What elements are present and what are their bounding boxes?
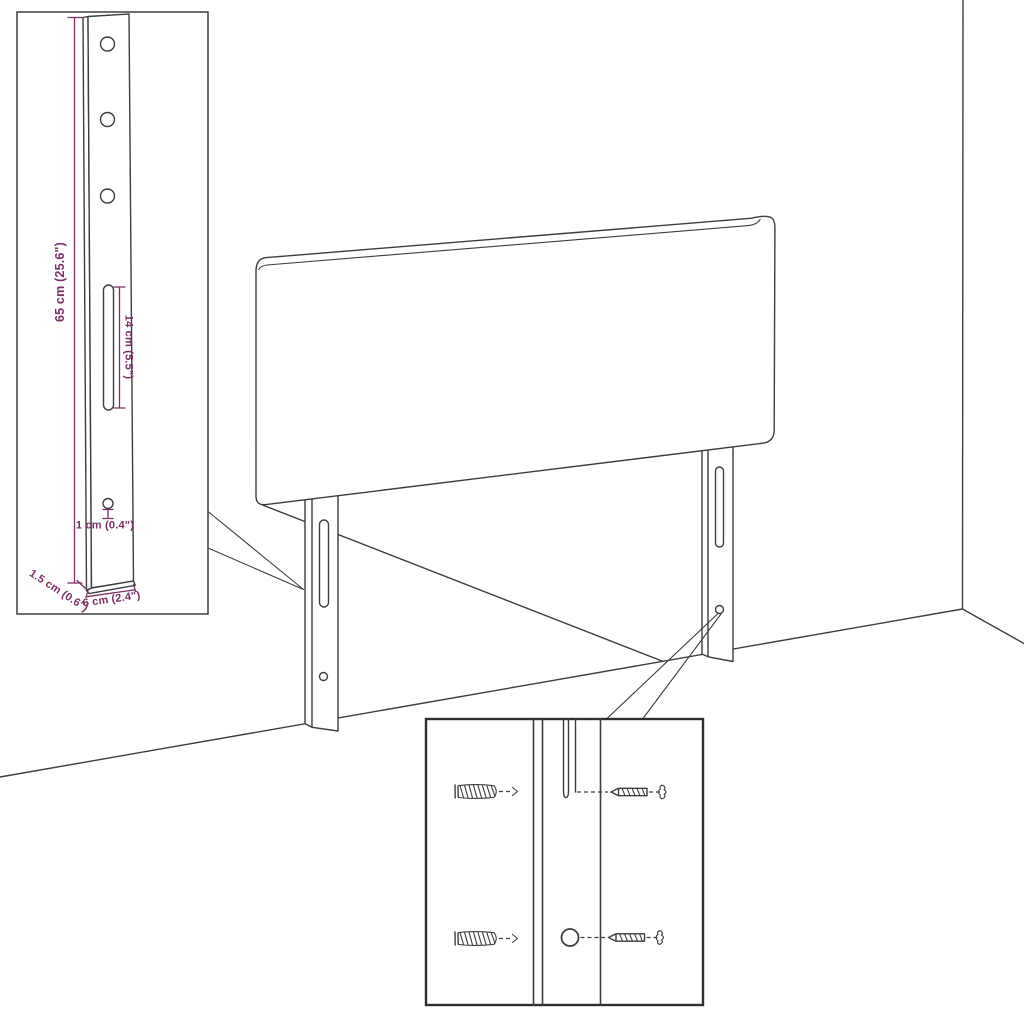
bracket-hole-1 — [101, 37, 115, 51]
bracket-slot — [104, 285, 114, 410]
dimension-label-hole-diameter: 1 cm (0.4") — [76, 520, 134, 532]
floor-line-right — [963, 609, 1024, 644]
headboard-assembly-diagram: 65 cm (25.6") 14 cm (5.5") 1 cm (0.4") 1… — [0, 0, 1024, 1024]
callout-wedge-left — [208, 512, 304, 590]
product-diagram-canvas: 65 cm (25.6") 14 cm (5.5") 1 cm (0.4") 1… — [0, 0, 1024, 1024]
left-leg — [305, 465, 338, 731]
right-leg — [702, 425, 733, 662]
wall-corner-line — [963, 0, 964, 609]
dimension-label-slot-length: 14 cm (5.5") — [123, 315, 135, 380]
mounting-inset-box — [426, 719, 703, 1005]
dimension-label-height: 65 cm (25.6") — [53, 242, 67, 322]
leg-detail-inset: 65 cm (25.6") 14 cm (5.5") 1 cm (0.4") 1… — [17, 12, 208, 615]
bracket-hole-2 — [101, 113, 115, 127]
bracket-screw-hole — [103, 499, 113, 509]
left-leg-hole — [320, 673, 328, 681]
right-leg-slot — [716, 467, 724, 547]
mounting-detail-inset — [426, 719, 703, 1005]
headboard-panel — [256, 216, 775, 504]
mounting-hole — [562, 929, 579, 946]
left-leg-slot — [320, 520, 329, 607]
bracket-hole-3 — [101, 189, 115, 203]
right-leg-hole — [716, 606, 724, 614]
